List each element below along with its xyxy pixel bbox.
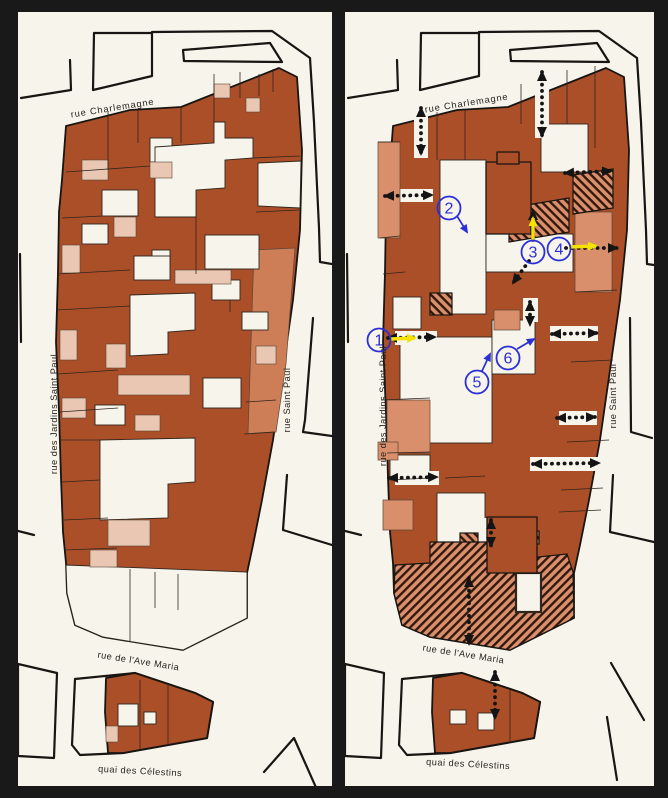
light-parcels-shape [150,162,172,178]
yellow-arrow-1 [391,338,415,339]
center-building-shape [486,162,531,234]
small-block-shape [478,713,494,730]
small-block-shape [118,704,138,726]
center-building-shape [487,517,537,573]
surrounding-streets-shape [610,475,654,542]
surrounding-streets-shape [420,33,479,90]
surrounding-streets-shape [303,318,332,436]
surrounding-streets-shape [283,475,332,545]
courtyards-shape [95,405,125,425]
surrounding-streets-shape [630,318,652,438]
yellow-arrow-4 [569,246,596,247]
street-label-jardins: rue des Jardins Saint Paul [378,346,388,466]
light-parcels-shape [118,375,190,395]
surrounding-streets-shape [347,254,348,342]
courtyards-shape [66,565,247,650]
street-label-ave-maria: rue de l'Ave Maria [97,650,181,673]
light-parcels-shape [90,550,117,567]
marker-4-shape: 4 [555,242,564,259]
surrounding-streets-shape [183,43,282,62]
street-label-celestins: quai des Célestins [426,757,510,771]
marker-5-shape: 5 [473,375,482,392]
small-block [399,673,540,755]
surrounding-streets-shape [21,60,71,98]
courtyards-shape [134,256,170,280]
street-label-jardins: rue des Jardins Saint Paul [49,354,59,474]
surrounding-streets-shape [607,717,617,780]
courtyards-shape [258,161,301,208]
surrounding-streets-shape [510,43,609,62]
surrounding-streets-shape [18,531,34,535]
surrounding-streets-shape [345,531,361,535]
courtyards-shape [205,235,259,269]
small-block-shape [144,712,156,724]
light-parcels-shape [62,398,86,418]
street-label-saint-paul: rue Saint Paul [282,368,292,433]
light-parcels-shape [383,500,413,530]
light-parcels-shape [256,346,276,364]
light-parcels-shape [575,212,612,292]
surrounding-streets-shape [20,254,21,342]
surrounding-streets-shape [93,33,152,90]
street-label-saint-paul: rue Saint Paul [608,364,618,429]
light-parcels-shape [175,270,231,284]
street-label-celestins: quai des Célestins [98,764,182,778]
small-block [72,673,213,755]
hatched-parcels-shape [516,573,541,612]
marker-6-shape: 6 [504,351,513,368]
light-parcels-shape [378,142,400,238]
hatched-parcels-shape [573,169,613,214]
light-parcels-shape [62,245,80,273]
marker-3-shape: 3 [529,245,538,262]
center-building-shape [497,152,519,164]
left-map-panel: rue Charlemagne rue des Jardins Saint Pa… [18,12,332,786]
small-block-shape [106,726,118,742]
surrounding-streets-shape [611,663,644,720]
right-map-panel: 1 2 3 4 5 [345,12,654,786]
light-parcels-shape [106,344,126,368]
surrounding-streets-shape [18,664,57,758]
light-parcels-shape [246,98,260,112]
left-map: rue Charlemagne rue des Jardins Saint Pa… [18,12,332,786]
hatched-parcels-shape [430,293,452,315]
surrounding-streets-shape [264,738,318,786]
small-block-shape [450,710,466,724]
right-map: 1 2 3 4 5 [345,12,654,786]
passage-arrow [557,417,595,418]
light-parcels-shape [135,415,160,431]
courtyards-shape [82,224,108,244]
light-parcels-shape [60,330,77,360]
marker-2-shape: 2 [445,201,454,218]
courtyards-shape [102,190,138,216]
courtyards-shape [242,312,268,330]
light-parcels-shape [114,217,136,237]
surrounding-streets-shape [348,60,398,98]
light-parcels-shape [108,520,150,546]
scanned-map-figure: rue Charlemagne rue des Jardins Saint Pa… [0,0,668,798]
courtyards-shape [440,160,486,314]
courtyards-shape [393,297,421,329]
light-parcels-shape [494,310,520,330]
courtyards-shape [203,378,241,408]
light-parcels-shape [214,84,230,98]
surrounding-streets-shape [345,664,384,758]
